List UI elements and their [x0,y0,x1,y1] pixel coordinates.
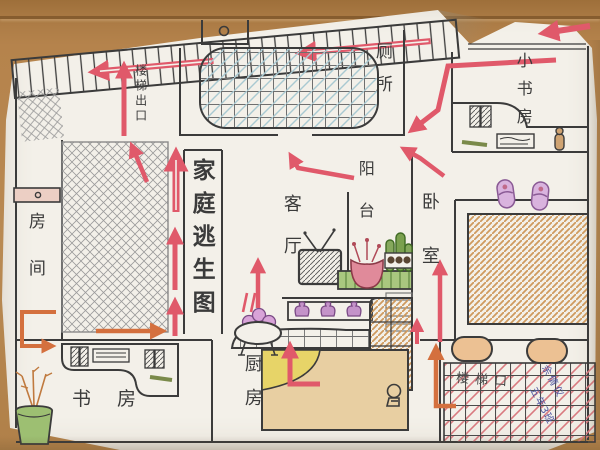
label-room: 房间 [25,212,43,306]
label-study: 书房 [72,390,162,410]
slippers-icon [496,179,550,211]
label-balcony: 阳台 [356,160,373,244]
balcony-shelf-jars [385,253,412,268]
potted-plant-icon [16,367,52,444]
tv-with-antenna-icon [299,228,341,284]
arrow-into-hall [404,149,444,176]
flower-pot-icon [351,238,383,288]
keyboard-icon [497,134,534,148]
arrow-living-room [291,156,354,178]
label-kitchen: 厨房 [242,354,261,422]
hatched-landing [17,88,64,142]
pencil-bed-crosshatch [62,142,168,332]
small-figure-icon [555,128,564,151]
label-stairs-exit: 楼梯出口 [134,64,147,124]
arrow-tail-marks [243,293,255,312]
label-toilet: 厕所 [372,42,390,108]
door-with-knob-left [14,188,60,202]
label-bedroom: 卧室 [419,192,438,300]
pen-icon [462,142,487,145]
bed-orange-hatch [468,214,588,324]
photo-of-escape-map: 家庭逃生图 楼梯出口 厕所 小书房 房间 客厅 阳台 卧室 书房 厨房 楼梯口 … [0,0,600,450]
label-small-study: 小书房 [514,52,531,136]
escape-arrow-left-corner [544,26,590,33]
map-title: 家庭逃生图 [189,158,213,323]
double-bed-grid [200,48,378,128]
wall-shelf-jars [288,302,372,320]
paper-edge-shade-bottom [0,436,600,450]
paper-edge-shade-right [586,40,600,440]
label-living-room: 客厅 [281,194,300,278]
